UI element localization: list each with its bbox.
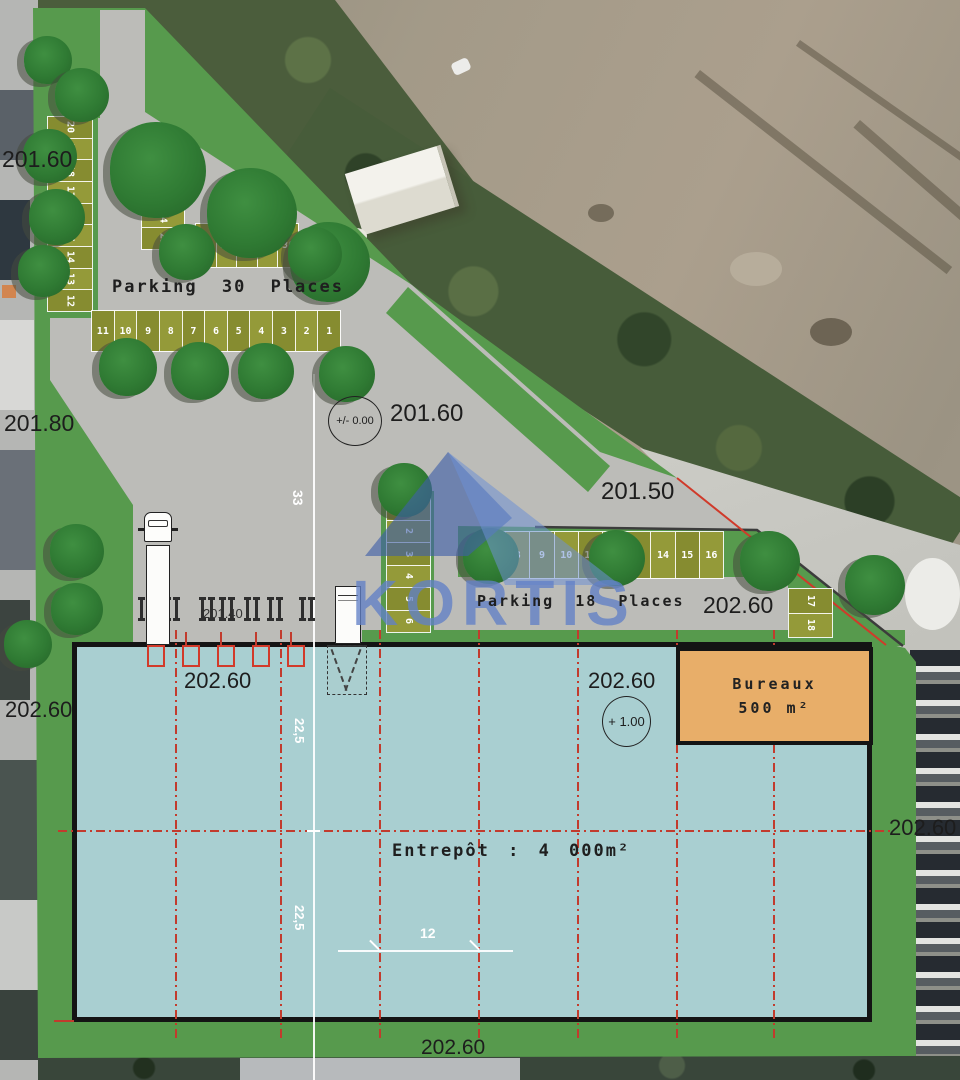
aerial-roof xyxy=(0,320,34,410)
dock-leveler-icon xyxy=(221,597,224,621)
parking-stall-17: 17 xyxy=(789,589,832,613)
tree-icon xyxy=(171,342,229,400)
tree-icon xyxy=(238,343,294,399)
dock-leveler-icon xyxy=(301,597,304,621)
aerial-road-bright xyxy=(905,558,960,630)
dock-door xyxy=(252,645,270,667)
parking-stall-16: 16 xyxy=(699,532,723,578)
grid-line xyxy=(379,630,381,1038)
dock-door xyxy=(287,645,305,667)
site-plan-screenshot: Bureaux 500 m² 33 22,5 22,5 12 201918171… xyxy=(0,0,960,1080)
grid-line xyxy=(478,630,480,1038)
dock-leveler-icon xyxy=(269,597,272,621)
dock-leveler-icon xyxy=(230,597,233,621)
dimension-22-5-lower: 22,5 xyxy=(292,905,307,930)
dimension-12: 12 xyxy=(420,925,436,941)
offices-area: 500 m² xyxy=(738,699,810,717)
grid-line xyxy=(58,830,893,832)
dock-door xyxy=(182,645,200,667)
level-top-left: 201.60 xyxy=(2,146,72,173)
tree-icon xyxy=(740,531,800,591)
tree-icon xyxy=(99,338,157,396)
parking-stall-5: 5 xyxy=(227,311,250,351)
tree-icon xyxy=(50,524,104,578)
dock-axis-tick xyxy=(255,632,257,645)
dock-leveler-icon xyxy=(310,597,313,621)
tree-icon xyxy=(288,227,342,281)
warehouse-label: Entrepôt : 4 000m² xyxy=(392,841,630,861)
aerial-orange-roof xyxy=(2,285,16,298)
dock-axis-tick xyxy=(185,632,187,645)
level-bottom: 202.60 xyxy=(421,1036,485,1060)
aerial-light-patch xyxy=(730,252,782,286)
dock-leveler-icon xyxy=(246,597,249,621)
dock-door xyxy=(147,645,165,667)
parking18-right-column: 1718 xyxy=(788,588,833,638)
tree-icon xyxy=(110,122,206,218)
parking-stall-18: 18 xyxy=(789,613,832,638)
aerial-trees-left xyxy=(0,990,38,1060)
level-dock: 202.60 xyxy=(184,668,251,694)
tree-icon xyxy=(51,583,103,635)
dock-door xyxy=(217,645,235,667)
grid-line xyxy=(175,630,177,1038)
offices-building: Bureaux 500 m² xyxy=(676,647,873,745)
tree-icon xyxy=(845,555,905,615)
level-left-mid: 201.80 xyxy=(4,410,74,437)
parking30-label: Parking 30 Places xyxy=(112,277,344,297)
parking-stall-8: 8 xyxy=(159,311,182,351)
aerial-dark-patch xyxy=(810,318,852,346)
aerial-dark-patch xyxy=(588,204,614,222)
parking-stall-2: 2 xyxy=(295,311,318,351)
tree-icon xyxy=(18,245,70,297)
dimension-tick xyxy=(307,830,320,832)
dock-leveler-icon xyxy=(175,597,178,621)
dock-axis-tick xyxy=(220,632,222,645)
dock-leveler-icon xyxy=(278,597,281,621)
tree-icon xyxy=(4,620,52,668)
tree-icon xyxy=(378,463,432,517)
dock-leveler-icon xyxy=(255,597,258,621)
dock-leveler-icon xyxy=(201,597,204,621)
tree-icon xyxy=(55,68,109,122)
corner-tick xyxy=(54,1020,74,1022)
ramp-symbol xyxy=(327,645,367,695)
parking-stall-2: 2 xyxy=(387,520,430,543)
aerial-roof xyxy=(0,900,38,990)
parking-stall-1: 1 xyxy=(317,311,340,351)
level-left-low: 202.60 xyxy=(5,697,72,723)
parking-stall-14: 14 xyxy=(650,532,674,578)
level-warehouse: 202.60 xyxy=(588,668,655,694)
tree-icon xyxy=(159,224,215,280)
dock-axis-tick xyxy=(290,632,292,645)
parking18-label: Parking 18 Places xyxy=(477,592,685,610)
level-yard: 201.60 xyxy=(390,400,463,428)
level-marker-plus-one: + 1.00 xyxy=(602,696,651,747)
tree-icon xyxy=(319,346,375,402)
aerial-trees-left xyxy=(0,760,38,900)
aerial-bottom-road xyxy=(240,1058,520,1080)
grid-line xyxy=(577,630,579,1038)
dimension-22-5-upper: 22,5 xyxy=(292,718,307,743)
grid-line xyxy=(280,630,282,1038)
tree-icon xyxy=(207,168,297,258)
dimension-line-horizontal xyxy=(338,950,513,952)
level-road: 201.50 xyxy=(601,478,674,506)
dimension-line-vertical xyxy=(313,374,315,1080)
dock-leveler-icon xyxy=(210,597,213,621)
tree-icon xyxy=(29,189,85,245)
dimension-33: 33 xyxy=(290,490,306,506)
level-marker-zero: +/- 0.00 xyxy=(328,396,382,446)
level-parking18: 202.60 xyxy=(703,592,773,619)
offices-name: Bureaux xyxy=(732,675,816,693)
semi-truck xyxy=(142,512,174,646)
parking-stall-3: 3 xyxy=(387,542,430,565)
aerial-parked-cars xyxy=(910,650,960,1080)
parking-stall-15: 15 xyxy=(675,532,699,578)
aerial-roof xyxy=(0,450,36,570)
level-right: 202.60 xyxy=(889,815,956,841)
